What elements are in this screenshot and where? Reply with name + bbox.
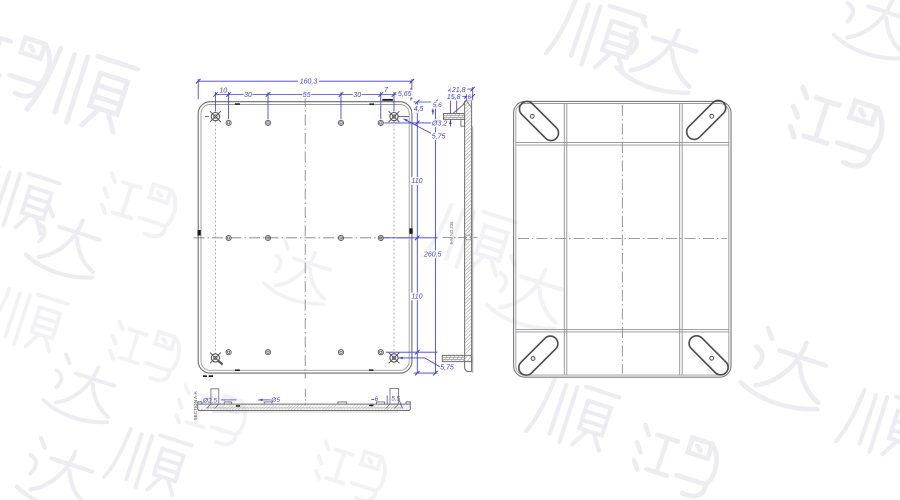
svg-text:55: 55 xyxy=(303,92,311,99)
svg-text:Ø2,5: Ø2,5 xyxy=(202,397,217,404)
svg-text:6: 6 xyxy=(375,396,379,403)
svg-text:Ø3,2: Ø3,2 xyxy=(431,120,447,127)
svg-text:160,3: 160,3 xyxy=(300,79,318,86)
svg-text:5,65: 5,65 xyxy=(398,91,412,98)
svg-text:30: 30 xyxy=(244,92,252,99)
svg-text:5,6: 5,6 xyxy=(433,102,442,109)
svg-text:Ø5: Ø5 xyxy=(270,397,280,404)
svg-text:5,75: 5,75 xyxy=(440,364,454,371)
svg-text:30: 30 xyxy=(353,92,361,99)
svg-text:10: 10 xyxy=(219,88,227,95)
svg-text:4,5: 4,5 xyxy=(414,106,424,113)
svg-text:5,75: 5,75 xyxy=(432,133,446,140)
svg-text:6-M NO.236: 6-M NO.236 xyxy=(449,221,454,244)
svg-text:6: 6 xyxy=(468,94,472,101)
svg-text:260,5: 260,5 xyxy=(423,252,442,259)
svg-text:110: 110 xyxy=(411,294,422,301)
svg-text:110: 110 xyxy=(411,178,422,185)
svg-text:SECTION A-A: SECTION A-A xyxy=(193,390,198,420)
svg-text:21,8: 21,8 xyxy=(451,87,466,94)
svg-text:15,8: 15,8 xyxy=(447,94,461,101)
